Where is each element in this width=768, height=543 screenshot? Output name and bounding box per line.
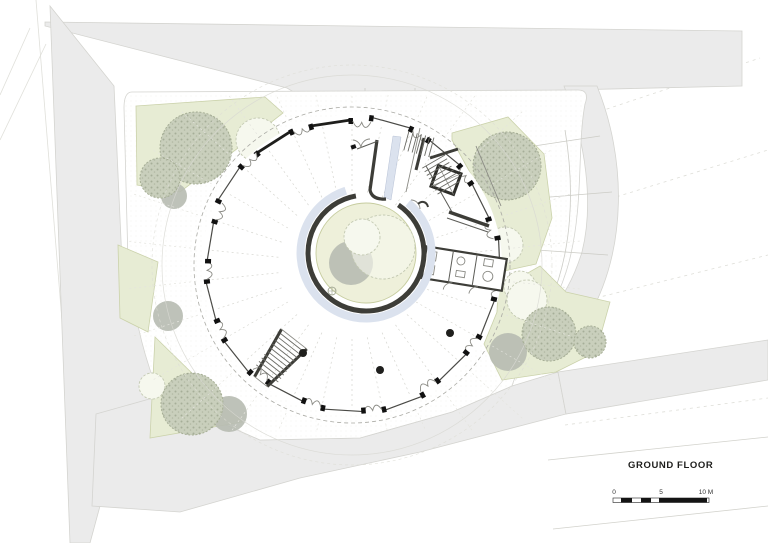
door-jamb [457,164,461,168]
door-jamb [290,129,292,134]
ground-floor-plan-drawing: GROUND FLOOR 0 5 10 M [0,0,768,543]
scale-label-10m: 10 M [699,489,713,496]
door-jamb [322,405,323,411]
title-block: GROUND FLOOR 0 5 10 M [612,460,713,503]
door-jamb [303,398,305,404]
door-jamb [222,339,227,342]
door-jamb [371,115,372,121]
scale-bar: 0 5 10 M [612,489,713,503]
door-jamb [464,351,469,355]
tree-canopy-outline [139,373,165,399]
door-jamb [495,237,501,238]
door-jamb [486,218,492,220]
door-jamb [216,200,221,203]
tree-foliage-texture [140,158,180,198]
door-jamb [204,281,210,282]
door-jamb [476,335,481,338]
site-plan-sheet: GROUND FLOOR 0 5 10 M [0,0,768,543]
drawing-title: GROUND FLOOR [628,460,713,471]
door-jamb [212,221,218,223]
door-jamb [410,127,412,133]
scale-label-0: 0 [612,489,616,496]
door-jamb [491,298,497,299]
adjacent-plot-outlines [548,437,768,529]
door-jamb [383,407,384,413]
tree-foliage-texture [161,373,223,435]
door-jamb [436,378,440,383]
courtyard-tree-canopy [344,219,380,255]
survey-marker [328,287,336,295]
column [376,366,384,374]
tree-foliage-texture [473,132,541,200]
tree-shadow [153,301,183,331]
door-jamb [421,392,424,397]
scale-label-5: 5 [659,489,663,496]
door-jamb [248,370,252,374]
column [299,349,307,357]
column [446,329,454,337]
door-jamb [310,124,312,130]
door-jamb [214,320,220,322]
door-jamb [468,182,473,185]
tree-foliage-texture [522,307,576,361]
tree-foliage-texture [574,326,606,358]
